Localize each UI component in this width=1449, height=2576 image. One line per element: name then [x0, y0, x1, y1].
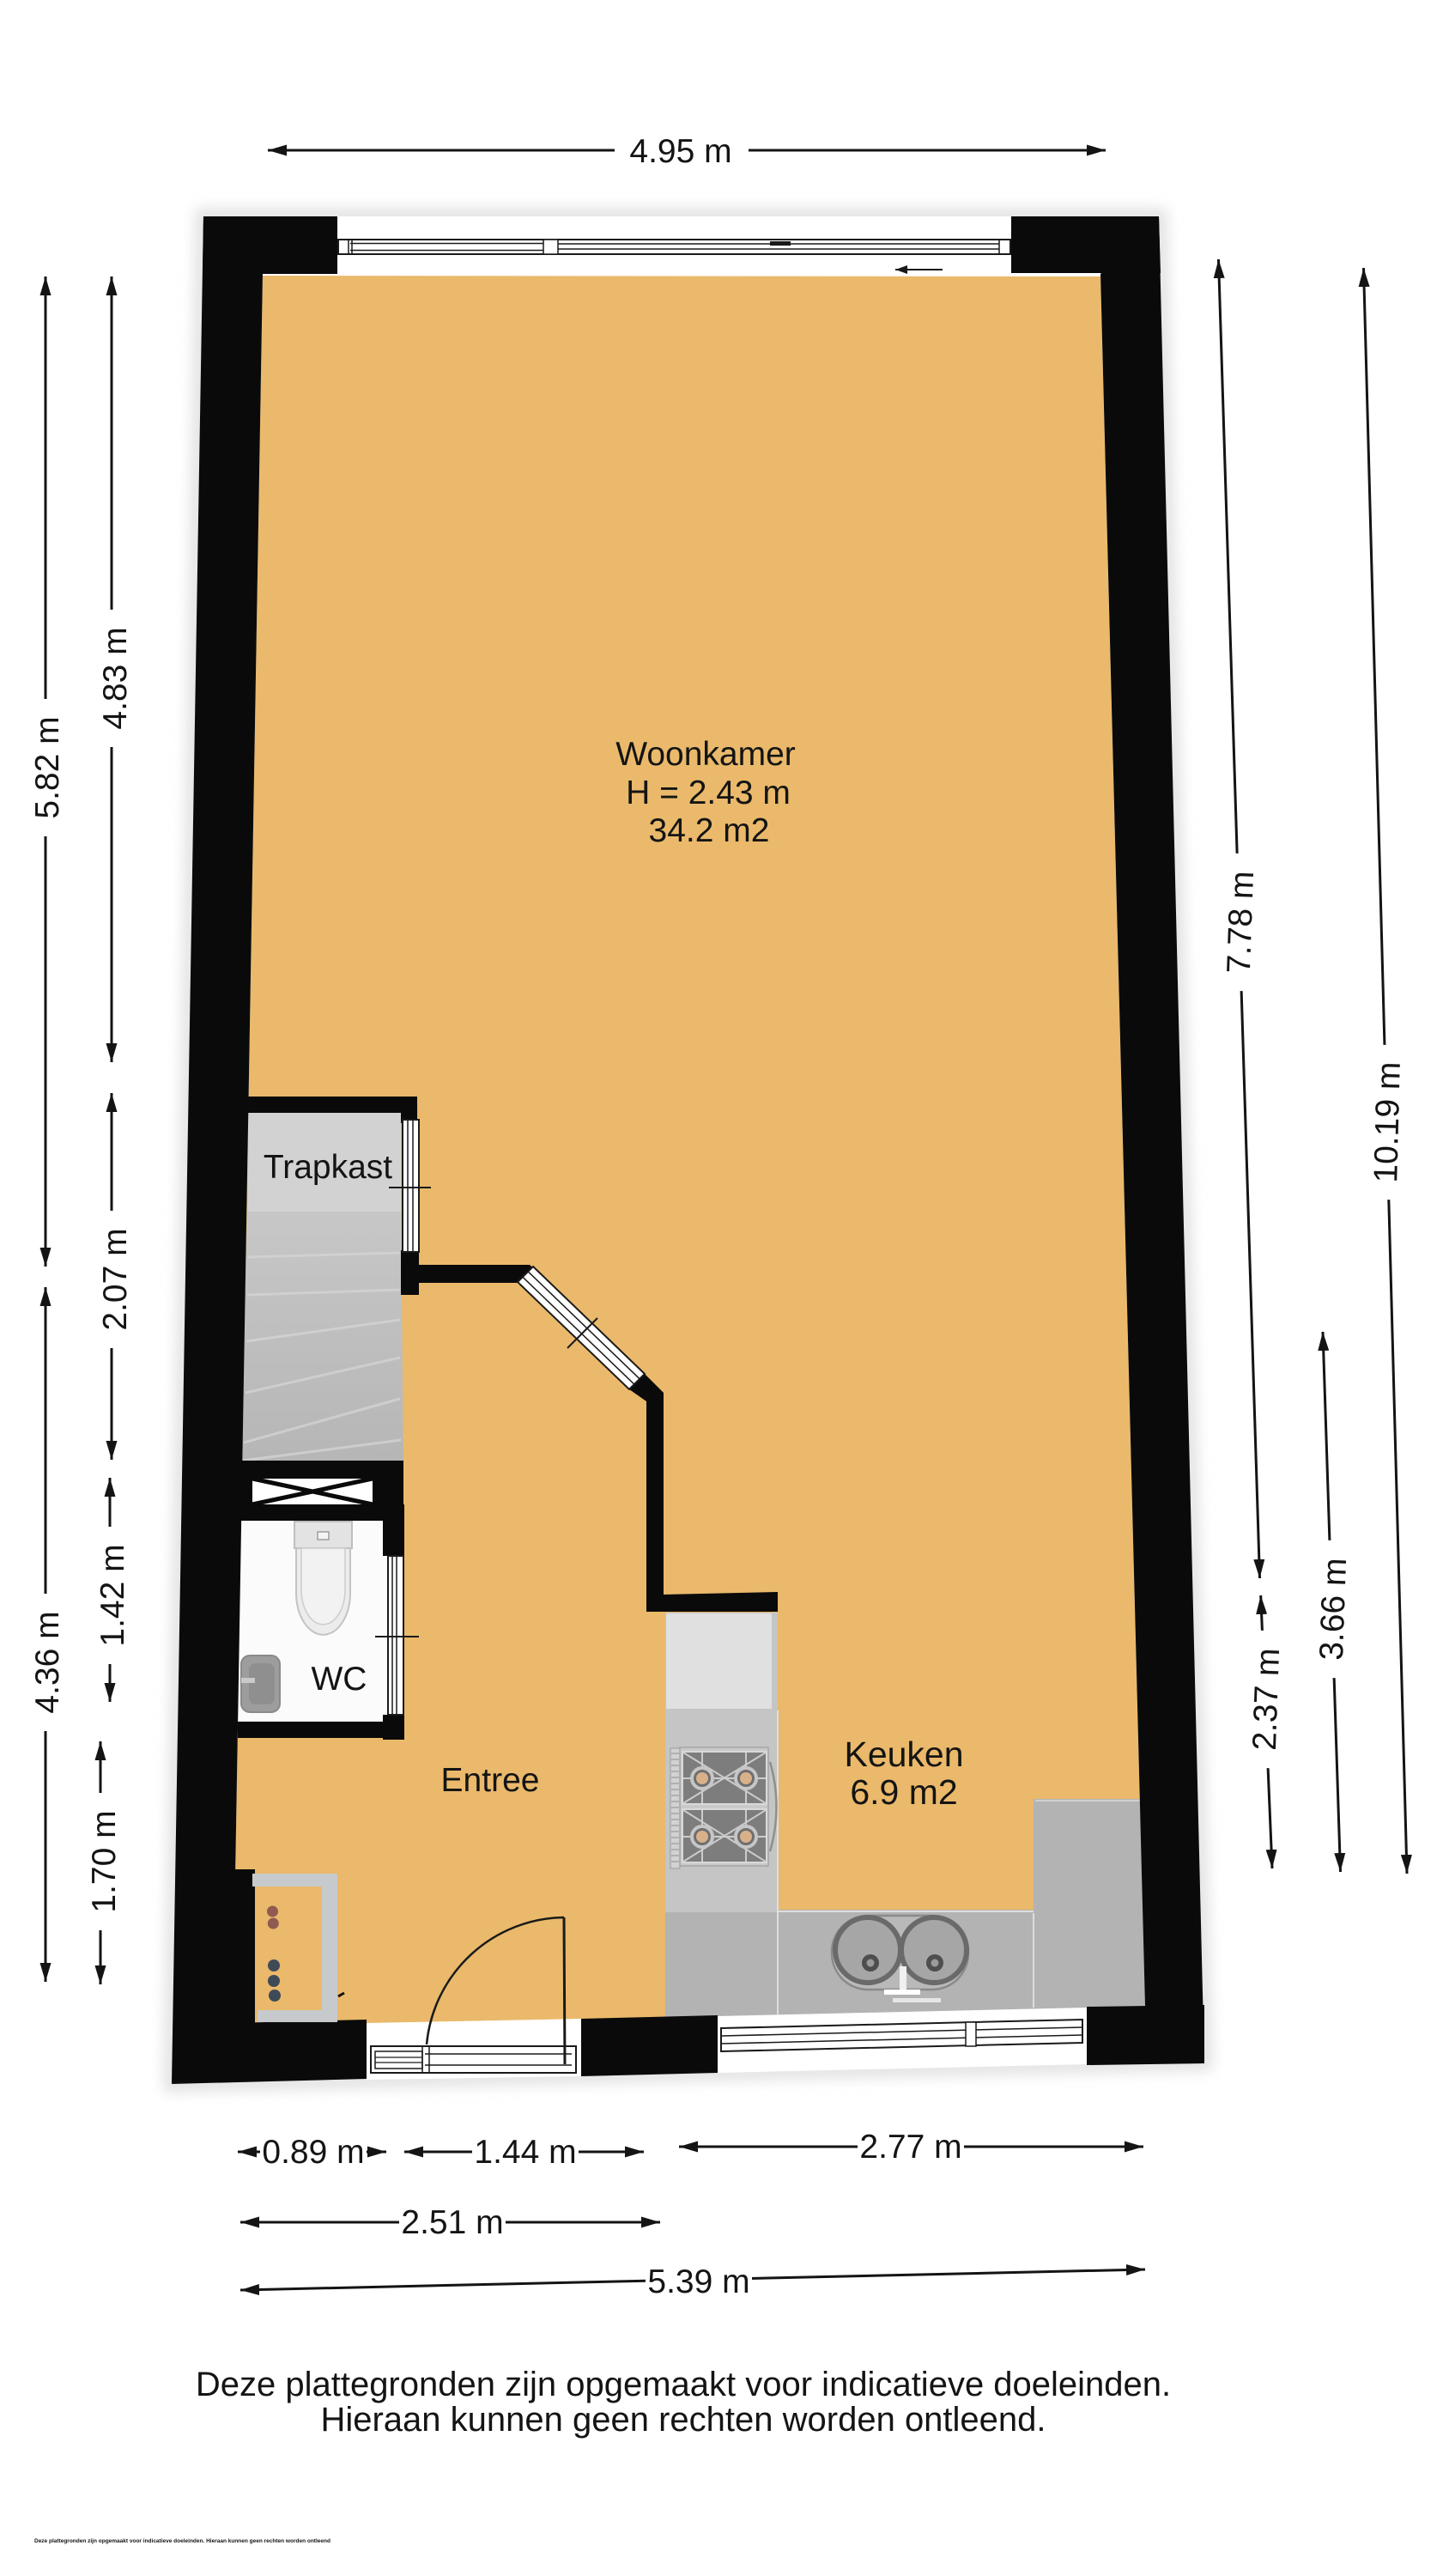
svg-text:0.89 m: 0.89 m [262, 2134, 364, 2171]
svg-text:2.07 m: 2.07 m [97, 1228, 134, 1330]
svg-text:WC: WC [312, 1661, 367, 1698]
svg-text:5.82 m: 5.82 m [29, 716, 66, 818]
svg-text:1.42 m: 1.42 m [94, 1544, 131, 1646]
svg-text:6.9 m2: 6.9 m2 [850, 1772, 957, 1812]
svg-text:Keuken: Keuken [844, 1735, 963, 1774]
svg-text:4.36 m: 4.36 m [29, 1611, 66, 1713]
svg-text:Deze plattegronden zijn opgema: Deze plattegronden zijn opgemaakt voor i… [196, 2366, 1171, 2403]
svg-text:Entree: Entree [441, 1762, 540, 1799]
svg-text:2.37 m: 2.37 m [1246, 1648, 1287, 1752]
svg-text:Woonkamer: Woonkamer [615, 736, 796, 773]
svg-text:2.77 m: 2.77 m [859, 2129, 961, 2166]
svg-text:Trapkast: Trapkast [264, 1149, 392, 1186]
svg-text:10.19 m: 10.19 m [1367, 1061, 1408, 1183]
svg-text:7.78 m: 7.78 m [1221, 871, 1261, 975]
svg-text:4.95 m: 4.95 m [629, 133, 731, 170]
svg-text:H = 2.43 m: H = 2.43 m [626, 775, 791, 811]
svg-text:3.66 m: 3.66 m [1313, 1558, 1354, 1662]
svg-text:Deze plattegronden zijn opgema: Deze plattegronden zijn opgemaakt voor i… [34, 2538, 330, 2544]
svg-text:5.39 m: 5.39 m [647, 2263, 749, 2300]
svg-text:2.51 m: 2.51 m [401, 2204, 503, 2241]
svg-text:1.70 m: 1.70 m [86, 1810, 123, 1912]
svg-text:1.44 m: 1.44 m [474, 2134, 576, 2171]
svg-text:34.2 m2: 34.2 m2 [649, 812, 770, 849]
svg-text:Hieraan kunnen geen rechten wo: Hieraan kunnen geen rechten worden ontle… [320, 2401, 1046, 2439]
svg-text:4.83 m: 4.83 m [97, 627, 134, 729]
